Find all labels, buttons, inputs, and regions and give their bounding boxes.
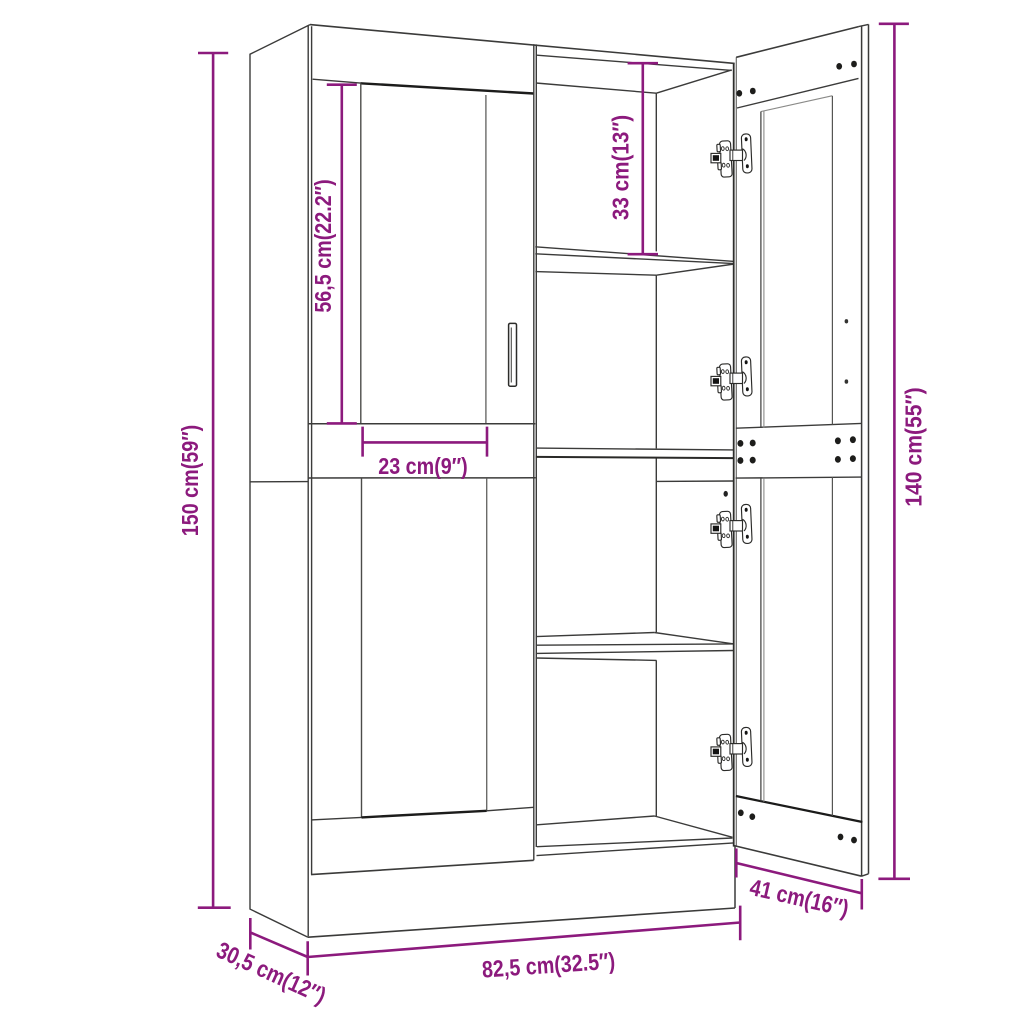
svg-text:33 cm(13″): 33 cm(13″) <box>607 115 634 220</box>
svg-text:56,5 cm(22.2″): 56,5 cm(22.2″) <box>309 179 336 312</box>
svg-text:140 cm(55″): 140 cm(55″) <box>901 387 927 506</box>
svg-text:150 cm(59″): 150 cm(59″) <box>176 425 203 536</box>
svg-text:23 cm(9″): 23 cm(9″) <box>378 452 467 479</box>
